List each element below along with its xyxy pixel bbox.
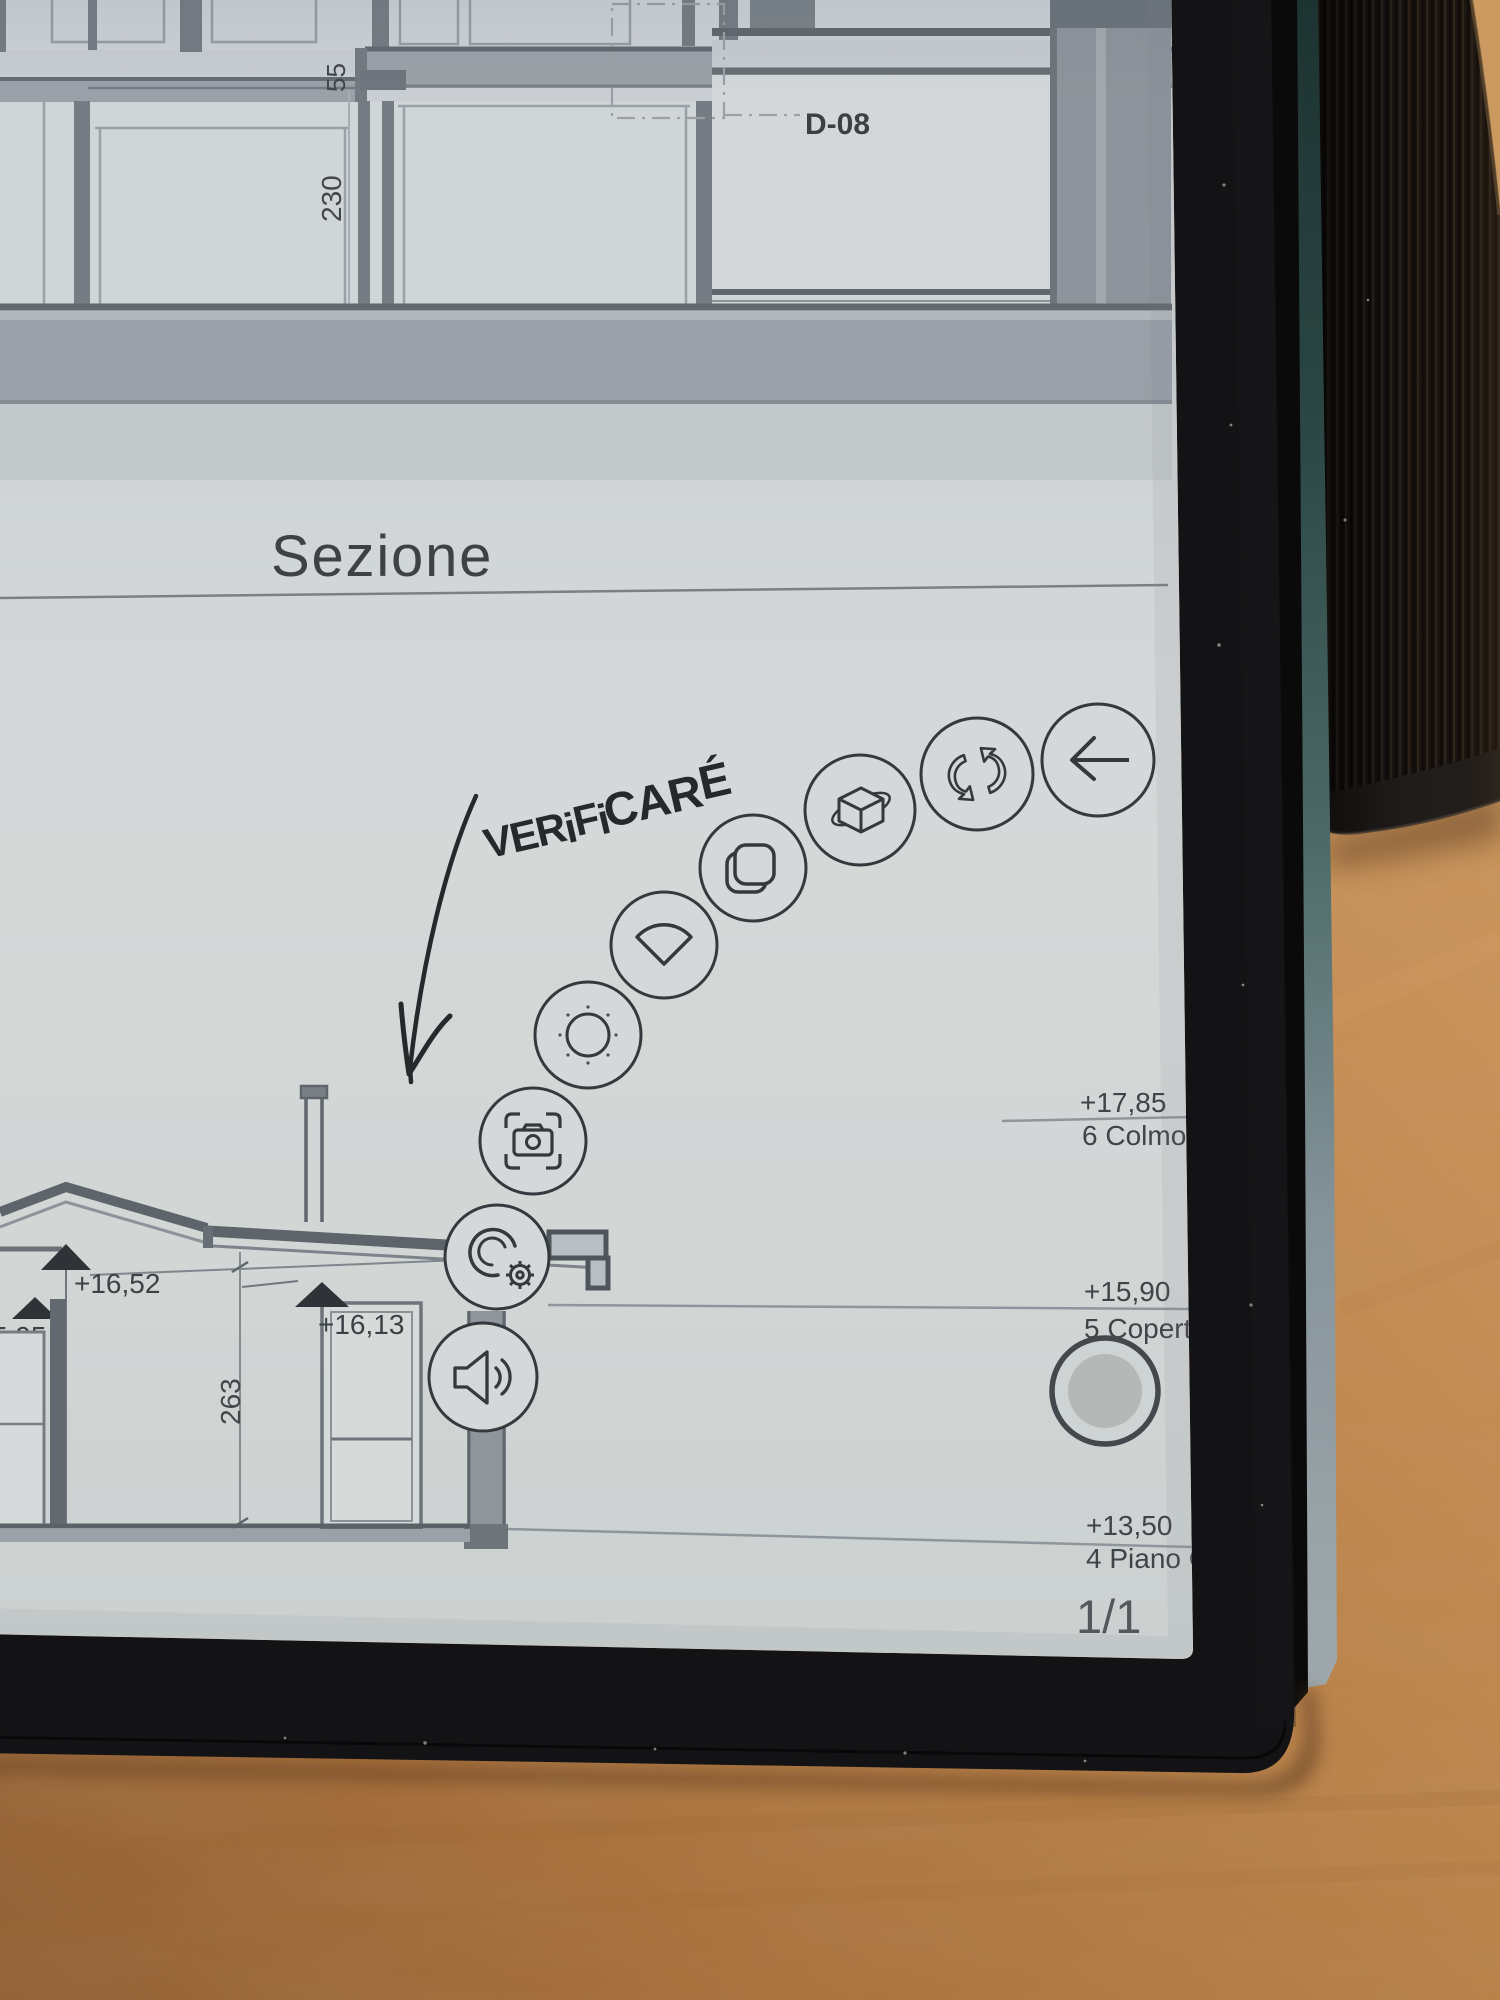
svg-text:+16,52: +16,52 [74,1268,160,1299]
svg-text:Sezione: Sezione [271,524,493,589]
svg-text:230: 230 [316,175,347,222]
svg-text:+13,50: +13,50 [1086,1510,1172,1541]
svg-text:263: 263 [215,1378,246,1425]
svg-text:D-08: D-08 [805,108,870,141]
svg-text:+15,90: +15,90 [1084,1276,1170,1307]
svg-text:+17,85: +17,85 [1080,1087,1166,1118]
svg-text:+16,13: +16,13 [318,1309,404,1340]
